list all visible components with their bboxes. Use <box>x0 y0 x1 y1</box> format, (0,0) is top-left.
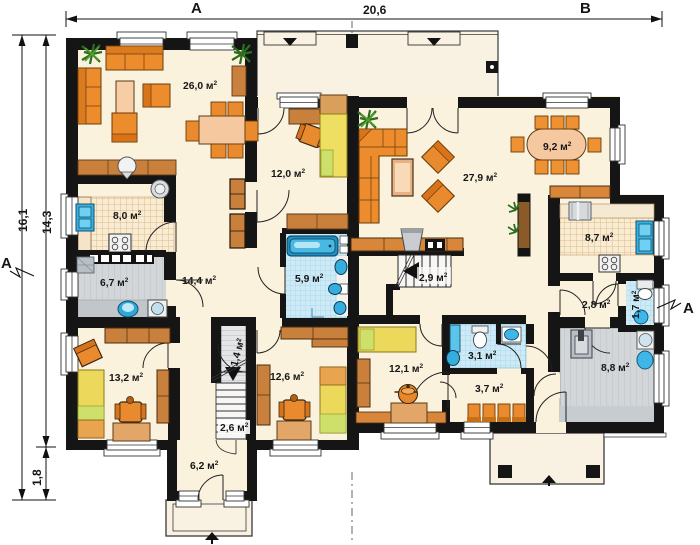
svg-text:12,6 м2: 12,6 м2 <box>270 371 305 383</box>
svg-text:8,8 м2: 8,8 м2 <box>601 362 630 374</box>
svg-text:6,2 м2: 6,2 м2 <box>190 460 219 472</box>
svg-text:3,7 м2: 3,7 м2 <box>475 383 504 395</box>
svg-text:13,2 м2: 13,2 м2 <box>109 372 144 384</box>
svg-text:8,0 м2: 8,0 м2 <box>113 210 142 222</box>
svg-text:5,9 м2: 5,9 м2 <box>295 273 324 285</box>
svg-text:27,9 м2: 27,9 м2 <box>463 172 498 184</box>
svg-text:26,0 м2: 26,0 м2 <box>183 80 218 92</box>
svg-text:3,1 м2: 3,1 м2 <box>468 350 497 362</box>
svg-text:A: A <box>683 300 694 317</box>
svg-text:2,6 м2: 2,6 м2 <box>220 422 249 434</box>
svg-text:14,3: 14,3 <box>40 210 54 234</box>
svg-text:2,8 м2: 2,8 м2 <box>582 299 611 311</box>
svg-text:B: B <box>580 0 591 17</box>
svg-text:16,1: 16,1 <box>16 208 30 232</box>
svg-text:9,2 м2: 9,2 м2 <box>543 141 572 153</box>
svg-text:A: A <box>191 0 202 17</box>
svg-text:12,0 м2: 12,0 м2 <box>271 168 306 180</box>
svg-text:14,4 м2: 14,4 м2 <box>182 275 217 287</box>
svg-text:8,7 м2: 8,7 м2 <box>585 232 614 244</box>
svg-text:1,8: 1,8 <box>30 469 44 486</box>
svg-text:2,9 м2: 2,9 м2 <box>419 272 448 284</box>
svg-text:12,1 м2: 12,1 м2 <box>389 363 424 375</box>
svg-text:20,6: 20,6 <box>363 3 387 17</box>
svg-text:1,7 м2: 1,7 м2 <box>631 290 642 319</box>
svg-text:6,7 м2: 6,7 м2 <box>100 277 129 289</box>
svg-text:A: A <box>1 255 12 272</box>
